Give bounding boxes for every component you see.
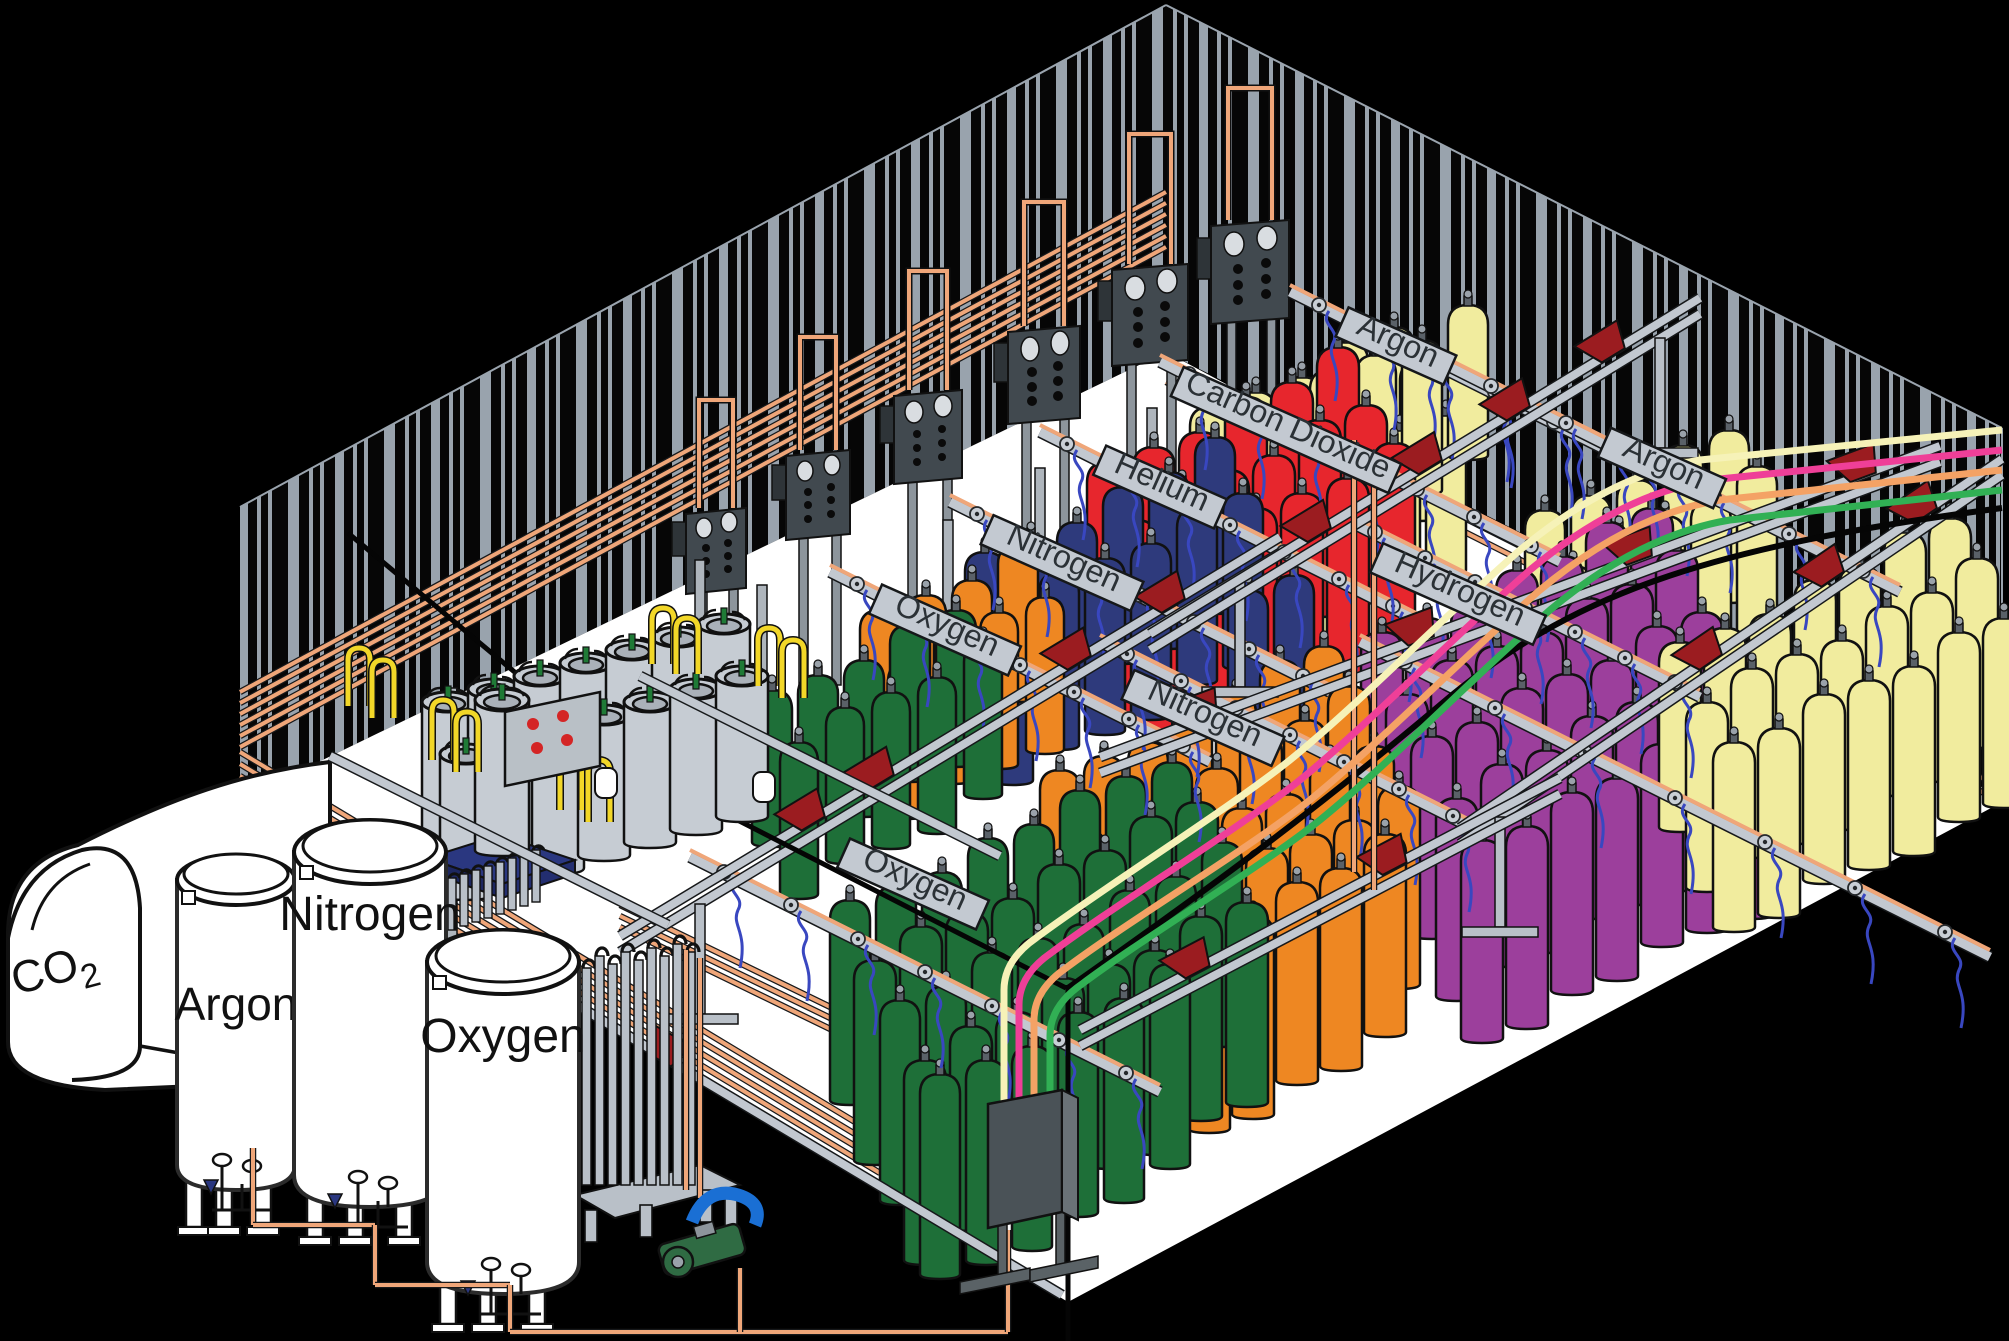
svg-text:Argon: Argon	[175, 978, 298, 1030]
svg-text:Oxygen: Oxygen	[420, 1010, 585, 1063]
svg-text:Nitrogen: Nitrogen	[279, 888, 460, 941]
